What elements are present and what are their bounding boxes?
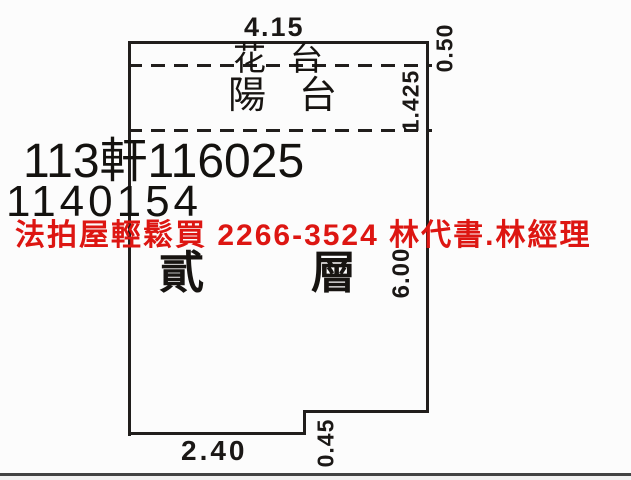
dim-top-width: 4.15 xyxy=(244,13,305,43)
dim-bottom-width: 2.40 xyxy=(181,436,248,467)
dim-right-height: 6.00 xyxy=(390,248,414,299)
scan-edge-band-under xyxy=(0,476,631,480)
dim-balcony-depth: 1.425 xyxy=(400,70,423,133)
notch-top-wall xyxy=(303,410,429,413)
watermark-text: 法拍屋輕鬆買 2266-3524 林代書.林經理 xyxy=(15,219,591,252)
balcony-label: 陽台 xyxy=(228,76,370,118)
dim-flower-bed-depth: 0.50 xyxy=(434,24,457,73)
floorplan-canvas: 花台 陽台 貳層 4.15 0.50 1.425 6.00 2.40 0.45 … xyxy=(0,0,631,480)
room-label: 貳層 xyxy=(159,248,463,298)
balcony-dashed-divider xyxy=(128,129,432,132)
dim-notch-depth: 0.45 xyxy=(315,419,338,468)
flower-bed-label: 花台 xyxy=(233,41,347,77)
